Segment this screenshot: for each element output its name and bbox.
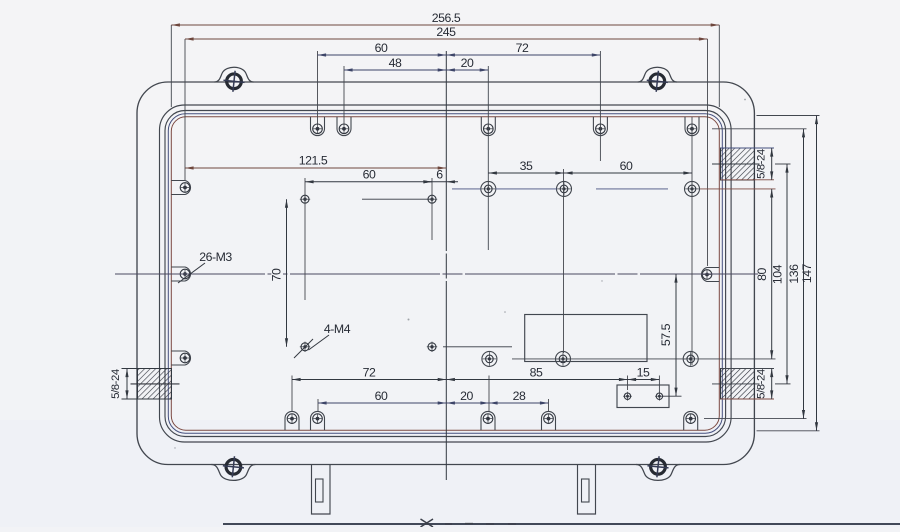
svg-text:104: 104: [770, 264, 784, 284]
svg-text:245: 245: [436, 25, 456, 39]
svg-text:60: 60: [375, 41, 388, 55]
svg-text:256.5: 256.5: [432, 11, 461, 25]
svg-text:72: 72: [516, 41, 529, 55]
svg-text:147: 147: [800, 263, 814, 283]
svg-text:6: 6: [436, 168, 443, 182]
svg-text:57.5: 57.5: [659, 323, 673, 346]
svg-text:26-M3: 26-M3: [199, 250, 232, 264]
svg-text:136: 136: [787, 264, 801, 284]
svg-text:60: 60: [620, 159, 633, 173]
svg-text:5/8-24: 5/8-24: [755, 149, 767, 179]
svg-text:20: 20: [460, 389, 473, 403]
svg-text:35: 35: [520, 159, 533, 173]
svg-text:60: 60: [375, 389, 388, 403]
svg-text:80: 80: [755, 268, 769, 281]
svg-text:72: 72: [363, 366, 376, 380]
svg-text:85: 85: [530, 366, 543, 380]
svg-text:20: 20: [461, 56, 474, 70]
svg-text:121.5: 121.5: [299, 154, 328, 168]
svg-text:15: 15: [637, 366, 650, 380]
svg-text:28: 28: [513, 389, 526, 403]
svg-text:70: 70: [270, 268, 284, 281]
svg-text:5/8-24: 5/8-24: [755, 369, 767, 399]
svg-text:5/8-24: 5/8-24: [110, 369, 122, 399]
svg-text:4-M4: 4-M4: [324, 322, 351, 336]
svg-text:60: 60: [363, 168, 376, 182]
svg-text:48: 48: [389, 56, 402, 70]
